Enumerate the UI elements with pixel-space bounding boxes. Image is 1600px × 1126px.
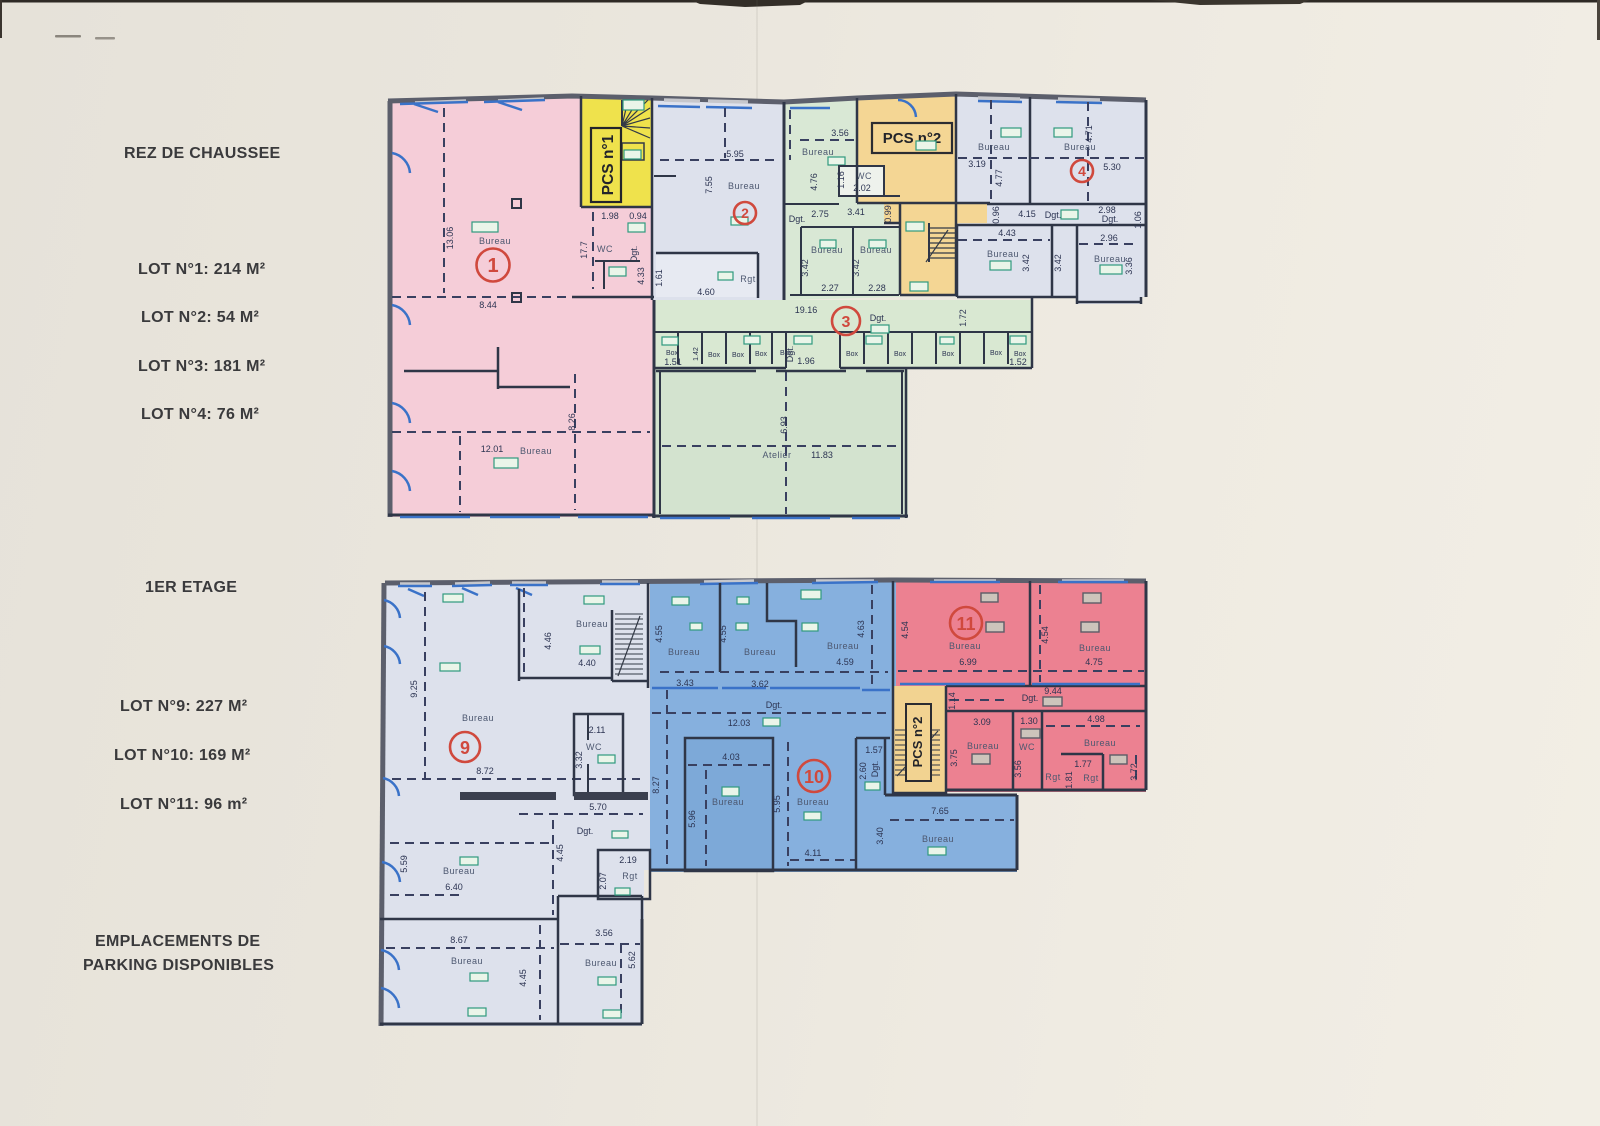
svg-text:4.60: 4.60 <box>697 287 715 297</box>
svg-text:8.44: 8.44 <box>479 300 497 310</box>
svg-text:Rgt: Rgt <box>1045 772 1061 782</box>
svg-text:6.99: 6.99 <box>959 657 977 667</box>
svg-text:9.25: 9.25 <box>409 680 419 698</box>
svg-text:8.67: 8.67 <box>450 935 468 945</box>
svg-text:3.41: 3.41 <box>847 207 865 217</box>
svg-text:3.40: 3.40 <box>875 827 885 845</box>
svg-text:Dgt.: Dgt. <box>1102 214 1119 224</box>
svg-text:4.43: 4.43 <box>998 228 1016 238</box>
svg-text:2: 2 <box>741 205 749 221</box>
svg-text:3.19: 3.19 <box>968 159 986 169</box>
svg-text:Dgt.: Dgt. <box>1022 693 1039 703</box>
svg-text:1.06: 1.06 <box>1133 211 1143 229</box>
svg-text:Dgt.: Dgt. <box>870 313 887 323</box>
svg-text:Bureau: Bureau <box>451 956 483 966</box>
svg-text:Box: Box <box>846 351 859 358</box>
svg-text:4.03: 4.03 <box>722 752 740 762</box>
svg-text:1.61: 1.61 <box>654 269 664 287</box>
svg-text:9: 9 <box>460 738 470 758</box>
svg-text:Bureau: Bureau <box>443 866 475 876</box>
svg-text:Bureau: Bureau <box>576 619 608 629</box>
svg-text:3.09: 3.09 <box>973 717 991 727</box>
svg-text:Box: Box <box>732 352 745 359</box>
svg-text:4.33: 4.33 <box>636 267 646 285</box>
svg-text:17.7: 17.7 <box>579 241 589 259</box>
svg-text:3.42: 3.42 <box>1053 254 1063 272</box>
svg-text:Bureau: Bureau <box>744 647 776 657</box>
svg-text:3.56: 3.56 <box>831 128 849 138</box>
svg-text:1.51: 1.51 <box>664 357 682 367</box>
svg-text:Bureau: Bureau <box>1094 254 1126 264</box>
svg-text:Rgt: Rgt <box>740 274 756 284</box>
svg-text:PCS n°2: PCS n°2 <box>910 717 925 768</box>
svg-text:0.99: 0.99 <box>883 205 893 223</box>
svg-text:1.77: 1.77 <box>1074 759 1092 769</box>
svg-text:11: 11 <box>956 614 975 634</box>
svg-text:2.28: 2.28 <box>868 283 886 293</box>
svg-text:Bureau: Bureau <box>797 797 829 807</box>
svg-text:2.07: 2.07 <box>598 872 608 890</box>
svg-text:Dgt.: Dgt. <box>870 761 880 778</box>
svg-text:1.81: 1.81 <box>1064 771 1074 789</box>
svg-text:2.60: 2.60 <box>858 762 868 780</box>
svg-text:3.75: 3.75 <box>949 749 959 767</box>
svg-text:1: 1 <box>487 255 498 277</box>
svg-text:10: 10 <box>804 767 824 787</box>
svg-text:1.16: 1.16 <box>836 171 846 189</box>
svg-text:1.42: 1.42 <box>693 347 700 361</box>
svg-text:9.44: 9.44 <box>1044 686 1062 696</box>
svg-text:3.56: 3.56 <box>1013 760 1023 778</box>
svg-text:12.01: 12.01 <box>481 444 504 454</box>
svg-text:Box: Box <box>942 351 955 358</box>
svg-text:6.93: 6.93 <box>779 416 789 434</box>
svg-text:4.15: 4.15 <box>1018 209 1036 219</box>
svg-text:Dgt.: Dgt. <box>789 214 806 224</box>
svg-text:WC: WC <box>597 244 613 254</box>
svg-text:0.94: 0.94 <box>629 211 647 221</box>
svg-text:4.75: 4.75 <box>1085 657 1103 667</box>
svg-text:3.36: 3.36 <box>1124 257 1134 275</box>
svg-text:PCS n°1: PCS n°1 <box>600 134 617 195</box>
svg-text:3.42: 3.42 <box>851 259 861 277</box>
svg-text:4.71: 4.71 <box>1084 125 1094 143</box>
svg-text:4.40: 4.40 <box>578 658 596 668</box>
svg-text:11.83: 11.83 <box>811 450 833 460</box>
svg-text:12.03: 12.03 <box>728 718 751 728</box>
svg-text:4.45: 4.45 <box>518 969 528 987</box>
svg-text:WC: WC <box>586 742 602 752</box>
svg-text:4.45: 4.45 <box>555 844 565 862</box>
svg-text:2.75: 2.75 <box>811 209 829 219</box>
svg-text:8.27: 8.27 <box>651 776 661 794</box>
svg-text:3.32: 3.32 <box>574 751 584 769</box>
svg-text:5.62: 5.62 <box>627 951 637 969</box>
svg-text:WC: WC <box>856 171 872 181</box>
svg-text:4.55: 4.55 <box>718 625 728 643</box>
svg-text:Bureau: Bureau <box>479 236 511 246</box>
svg-text:4.77: 4.77 <box>994 169 1004 187</box>
svg-text:Bureau: Bureau <box>922 834 954 844</box>
svg-text:Bureau: Bureau <box>520 446 552 456</box>
svg-text:1.14: 1.14 <box>947 692 957 710</box>
svg-text:Dgt.: Dgt. <box>1045 210 1062 220</box>
svg-text:Box: Box <box>894 351 907 358</box>
svg-text:3.62: 3.62 <box>751 679 769 689</box>
svg-text:4: 4 <box>1078 163 1086 179</box>
svg-text:Box: Box <box>666 350 679 357</box>
svg-text:5.95: 5.95 <box>772 795 782 813</box>
svg-text:Box: Box <box>990 350 1003 357</box>
svg-text:Rgt: Rgt <box>622 871 638 881</box>
svg-text:Rgt: Rgt <box>1083 773 1099 783</box>
svg-text:4.98: 4.98 <box>1087 714 1105 724</box>
svg-text:5.70: 5.70 <box>589 802 607 812</box>
svg-text:5.30: 5.30 <box>1103 162 1121 172</box>
svg-text:Dgt.: Dgt. <box>577 826 594 836</box>
svg-text:Dgt.: Dgt. <box>785 346 795 363</box>
svg-text:4.46: 4.46 <box>543 632 553 650</box>
svg-text:4.54: 4.54 <box>900 621 910 639</box>
svg-text:1.30: 1.30 <box>1020 716 1038 726</box>
svg-text:5.95: 5.95 <box>726 149 744 159</box>
svg-text:8.72: 8.72 <box>476 766 494 776</box>
svg-text:2.27: 2.27 <box>821 283 839 293</box>
svg-text:3.42: 3.42 <box>800 259 810 277</box>
svg-text:Box: Box <box>755 351 768 358</box>
svg-text:4.11: 4.11 <box>805 848 822 858</box>
svg-text:Bureau: Bureau <box>712 797 744 807</box>
svg-text:19.16: 19.16 <box>795 305 818 315</box>
svg-text:Atelier: Atelier <box>762 450 791 460</box>
svg-text:1.72: 1.72 <box>958 309 968 327</box>
svg-text:0.96: 0.96 <box>991 206 1001 224</box>
svg-text:8.26: 8.26 <box>567 413 577 431</box>
svg-text:5.59: 5.59 <box>399 855 409 873</box>
svg-text:Bureau: Bureau <box>949 641 981 651</box>
svg-text:4.55: 4.55 <box>654 625 664 643</box>
svg-text:Bureau: Bureau <box>585 958 617 968</box>
svg-text:2.19: 2.19 <box>619 855 637 865</box>
svg-text:3: 3 <box>842 314 851 331</box>
svg-text:2.96: 2.96 <box>1100 233 1118 243</box>
svg-text:Bureau: Bureau <box>802 147 834 157</box>
svg-text:Dgt.: Dgt. <box>766 700 783 710</box>
svg-text:4.54: 4.54 <box>1040 626 1050 644</box>
svg-text:1.96: 1.96 <box>797 356 815 366</box>
svg-text:Bureau: Bureau <box>827 641 859 651</box>
svg-text:Dgt.: Dgt. <box>629 246 639 263</box>
svg-text:6.40: 6.40 <box>445 882 463 892</box>
svg-text:Bureau: Bureau <box>462 713 494 723</box>
svg-text:4.76: 4.76 <box>809 173 819 191</box>
svg-text:Bureau: Bureau <box>728 181 760 191</box>
svg-text:Bureau: Bureau <box>1079 643 1111 653</box>
svg-text:13.06: 13.06 <box>445 227 455 250</box>
svg-text:Box: Box <box>708 352 721 359</box>
svg-text:4.63: 4.63 <box>856 620 866 638</box>
svg-text:4.59: 4.59 <box>836 657 854 667</box>
svg-text:Bureau: Bureau <box>967 741 999 751</box>
svg-text:Bureau: Bureau <box>668 647 700 657</box>
svg-text:1.57: 1.57 <box>865 745 883 755</box>
svg-text:WC: WC <box>1019 742 1035 752</box>
svg-text:7.55: 7.55 <box>704 176 714 194</box>
svg-text:3.42: 3.42 <box>1021 254 1031 272</box>
svg-text:2.11: 2.11 <box>589 725 606 735</box>
svg-text:7.65: 7.65 <box>931 806 949 816</box>
svg-text:1.98: 1.98 <box>601 211 619 221</box>
svg-text:Bureau: Bureau <box>1084 738 1116 748</box>
svg-text:5.96: 5.96 <box>687 810 697 828</box>
svg-text:3.56: 3.56 <box>595 928 613 938</box>
svg-text:Bureau: Bureau <box>987 249 1019 259</box>
svg-text:3.72: 3.72 <box>1129 763 1139 781</box>
svg-text:1.52: 1.52 <box>1009 357 1027 367</box>
svg-text:3.43: 3.43 <box>676 678 694 688</box>
svg-text:Bureau: Bureau <box>978 142 1010 152</box>
